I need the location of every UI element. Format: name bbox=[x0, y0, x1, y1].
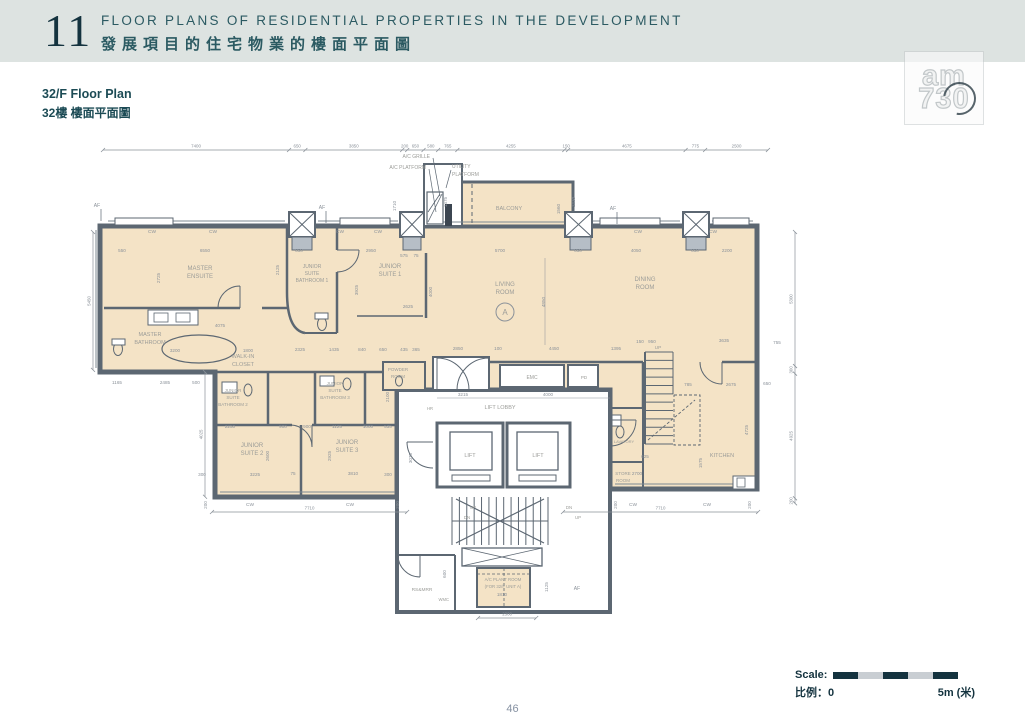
plan-label: 75 bbox=[290, 471, 296, 476]
plan-label: 575 bbox=[400, 253, 408, 258]
vanity bbox=[148, 310, 198, 325]
plan-label: 775 bbox=[692, 144, 700, 149]
plan-label: 2300 bbox=[502, 612, 512, 617]
plan-label: BALCONY bbox=[496, 206, 523, 212]
plan-label: ROOM bbox=[391, 374, 405, 379]
plan-label: 500 bbox=[192, 380, 200, 385]
plan-label: 1395 bbox=[611, 346, 622, 351]
plan-label: 4000 bbox=[543, 392, 554, 397]
plan-label: 625 bbox=[641, 454, 649, 459]
plan-label: JUNIOR bbox=[241, 443, 264, 449]
plan-label: CW bbox=[148, 229, 156, 235]
plan-label: SUITE 3 bbox=[336, 448, 359, 454]
plan-label: 200 bbox=[203, 501, 208, 509]
plan-label: SUITE bbox=[328, 388, 341, 393]
plan-label: DN bbox=[566, 505, 572, 510]
plan-label: CW bbox=[709, 229, 717, 235]
plan-label: 4025 bbox=[199, 429, 204, 439]
plan-label: SUITE 2 bbox=[241, 451, 264, 457]
plan-label: 1810 bbox=[497, 592, 508, 597]
scale-segment bbox=[833, 672, 858, 679]
plan-label: 2200 bbox=[722, 248, 733, 253]
plan-label: (FOR 32/F UNIT A) bbox=[485, 584, 522, 589]
plan-label: 900 bbox=[279, 424, 287, 429]
plan-label: BATHROOM 2 bbox=[218, 402, 248, 407]
plan-label: UP bbox=[655, 345, 662, 351]
plan-label: 2125 bbox=[275, 264, 280, 275]
plan-label: 2925 bbox=[327, 450, 332, 461]
plan-label: CW bbox=[634, 229, 642, 235]
plan-label: 5700 bbox=[495, 248, 506, 253]
scale-segment bbox=[933, 672, 958, 679]
plan-label: JUNIOR bbox=[336, 440, 359, 446]
plan-label: LIFT bbox=[464, 453, 476, 459]
plan-label: 3850 bbox=[349, 144, 359, 149]
plan-label: 4725 bbox=[744, 424, 749, 435]
plan-label: 3925 bbox=[354, 284, 359, 295]
plan-label: 785 bbox=[684, 382, 692, 387]
plan-label: WMC bbox=[439, 597, 449, 602]
plan-label: LAVATORY bbox=[614, 439, 635, 444]
plan-label: CW bbox=[629, 502, 637, 508]
plan-label: AF bbox=[610, 206, 616, 212]
plan-label: 2100 bbox=[385, 391, 390, 402]
plan-label: 755 bbox=[773, 340, 781, 345]
plan-label: 3635 bbox=[719, 338, 730, 343]
plan-label: 6550 bbox=[200, 248, 211, 253]
plan-label: AF bbox=[319, 205, 325, 211]
plan-label: CW bbox=[703, 502, 711, 508]
plan-label: 650 bbox=[294, 144, 302, 149]
plan-label: 1800 bbox=[243, 348, 254, 353]
plan-label: WALK-IN bbox=[232, 354, 255, 360]
plan-label: 1000 bbox=[363, 424, 374, 429]
scale-segment bbox=[908, 672, 933, 679]
plan-label: BATHROOM 1 bbox=[296, 278, 329, 284]
plan-label: 300 bbox=[789, 366, 794, 374]
plan-label: 3200 bbox=[170, 348, 181, 353]
plan-label: 300 bbox=[198, 472, 206, 477]
plan-label: JUNIOR bbox=[303, 264, 322, 270]
plan-label: 650 bbox=[295, 248, 303, 253]
plan-label: A/C GRILLE bbox=[402, 154, 430, 160]
plan-label: 2625 bbox=[403, 304, 414, 309]
plan-label: 1435 bbox=[329, 347, 340, 352]
plan-label: 5300 bbox=[789, 294, 794, 304]
plan-label: 1125 bbox=[544, 582, 549, 592]
plan-label: JUNIOR bbox=[379, 264, 402, 270]
plan-label: 550 bbox=[118, 248, 126, 253]
plan-shape bbox=[713, 218, 749, 225]
plan-shape bbox=[600, 218, 660, 225]
plan-label: 840 bbox=[358, 347, 366, 352]
plan-label: 4255 bbox=[506, 144, 516, 149]
plan-label: 3215 bbox=[458, 392, 469, 397]
plan-label: PLATFORM bbox=[452, 172, 479, 178]
scale-label-en: Scale: bbox=[795, 669, 827, 681]
plan-label: CW bbox=[209, 229, 217, 235]
plan-label: CW bbox=[336, 229, 344, 235]
plan-label: 650 bbox=[574, 248, 582, 253]
plan-shape bbox=[340, 218, 390, 225]
plan-label: 2675 bbox=[726, 382, 737, 387]
plan-label: 4000 bbox=[428, 286, 433, 297]
am730-watermark-logo: am 730 bbox=[905, 52, 983, 124]
plan-label: 4925 bbox=[789, 431, 794, 441]
scale-zero: 比例：0 bbox=[795, 684, 834, 700]
scale-segment bbox=[858, 672, 883, 679]
plan-label: DN bbox=[464, 515, 470, 520]
plan-label: ROOM bbox=[616, 478, 630, 483]
floor-plan-drawing: 7400650385020065058076542551504675775250… bbox=[0, 0, 1025, 727]
plan-label: 650 bbox=[379, 347, 387, 352]
plan-shape bbox=[315, 313, 328, 319]
plan-label: 365 bbox=[412, 347, 420, 352]
plan-label: SUITE bbox=[226, 395, 239, 400]
plan-label: HR bbox=[427, 406, 433, 411]
plan-label: 7710 bbox=[656, 506, 666, 511]
plan-label: 2485 bbox=[160, 380, 171, 385]
plan-label: 4850 bbox=[541, 296, 546, 307]
plan-label: RS&MRR bbox=[412, 587, 433, 593]
plan-shape bbox=[115, 218, 173, 225]
plan-label: 3075 bbox=[408, 452, 413, 463]
plan-label: KITCHEN bbox=[710, 453, 734, 459]
plan-label: 4675 bbox=[622, 144, 632, 149]
plan-label: JUNIOR bbox=[225, 388, 243, 393]
plan-label: LIVING bbox=[495, 282, 515, 288]
plan-label: 580 bbox=[427, 144, 435, 149]
plan-label: 1710 bbox=[392, 200, 397, 211]
plan-label: ENSUITE bbox=[187, 274, 213, 280]
page-number: 46 bbox=[0, 703, 1025, 715]
plan-label: 2325 bbox=[295, 347, 306, 352]
scale-bar: Scale: 比例：0 5m (米) bbox=[795, 669, 975, 700]
plan-label: UP bbox=[470, 505, 476, 510]
plan-label: 1375 bbox=[443, 196, 448, 207]
plan-label: 1575 bbox=[698, 457, 703, 468]
plan-label: CLOSET bbox=[232, 362, 255, 368]
plan-label: 2500 bbox=[732, 144, 742, 149]
plan-label: 4450 bbox=[549, 346, 560, 351]
plan-label: LIFT bbox=[532, 453, 544, 459]
plan-label: 200 bbox=[401, 144, 409, 149]
plan-label: 650 bbox=[412, 144, 420, 149]
plan-shape bbox=[112, 339, 125, 345]
plan-label: UP bbox=[575, 515, 581, 520]
plan-shape bbox=[403, 237, 421, 250]
plan-label: AF bbox=[574, 586, 580, 592]
plan-label: 3810 bbox=[348, 471, 359, 476]
plan-label: STORE bbox=[615, 471, 630, 476]
plan-label: 150 bbox=[563, 144, 571, 149]
plan-label: 650 bbox=[763, 381, 771, 386]
plan-label: 900 bbox=[303, 424, 311, 429]
plan-label: 2700 bbox=[632, 471, 643, 476]
plan-label: 2250 bbox=[225, 424, 236, 429]
plan-label: SUITE 1 bbox=[379, 272, 402, 278]
plan-label: ROOM bbox=[636, 285, 655, 291]
plan-label: 100 bbox=[494, 346, 502, 351]
plan-label: MASTER bbox=[187, 266, 213, 272]
plan-label: A/C PLATFORM bbox=[389, 165, 426, 171]
plan-label: 1125 bbox=[332, 424, 342, 429]
plan-label: UTILITY bbox=[452, 164, 471, 170]
plan-label: A bbox=[502, 308, 508, 317]
plan-label: CW bbox=[346, 502, 354, 508]
plan-label: SUITE bbox=[305, 271, 320, 277]
plan-label: 535 bbox=[384, 424, 392, 429]
plan-label: LIFT LOBBY bbox=[484, 405, 515, 411]
plan-label: MASTER bbox=[139, 332, 162, 338]
plan-label: 300 bbox=[384, 472, 392, 477]
plan-label: 4075 bbox=[215, 323, 226, 328]
plan-label: 200 bbox=[747, 501, 752, 509]
scale-max: 5m (米) bbox=[938, 684, 975, 700]
plan-label: JUNIOR bbox=[327, 381, 345, 386]
plan-label: 75 bbox=[413, 253, 419, 258]
plan-label: 435 bbox=[400, 347, 408, 352]
plan-label: 7710 bbox=[305, 506, 315, 511]
plan-label: 4050 bbox=[631, 248, 642, 253]
plan-label: AF bbox=[94, 203, 100, 209]
plan-label: 2950 bbox=[366, 248, 377, 253]
plan-label: PD bbox=[581, 375, 588, 380]
plan-label: EMC bbox=[526, 375, 538, 381]
scale-bar-segments bbox=[833, 672, 958, 679]
plan-label: 650 bbox=[691, 248, 699, 253]
plan-label: 1165 bbox=[112, 380, 122, 385]
plan-label: BATHROOM bbox=[134, 340, 166, 346]
plan-label: 765 bbox=[444, 144, 452, 149]
plan-label: A/C PLANT ROOM bbox=[485, 577, 522, 582]
plan-label: 200 bbox=[395, 501, 400, 509]
plan-label: 1560 bbox=[556, 203, 561, 214]
plan-label: DINING bbox=[635, 277, 656, 283]
plan-label: 7400 bbox=[191, 144, 201, 149]
plan-label: BATHROOM 3 bbox=[320, 395, 350, 400]
plan-label: 150 bbox=[636, 339, 644, 344]
plan-label: 200 bbox=[613, 501, 618, 509]
plan-label: 5450 bbox=[87, 296, 92, 306]
plan-label: POWDER bbox=[388, 367, 409, 372]
plan-label: 1210 bbox=[571, 196, 576, 207]
plan-label: 600 bbox=[442, 570, 447, 578]
plan-label: 950 bbox=[648, 339, 656, 344]
plan-label: ROOM bbox=[496, 290, 515, 296]
plan-label: 2600 bbox=[265, 450, 270, 461]
plan-label: 3225 bbox=[250, 472, 261, 477]
scale-segment bbox=[883, 672, 908, 679]
plan-label: 2850 bbox=[453, 346, 464, 351]
plan-label: 2725 bbox=[156, 272, 161, 283]
plan-label: CW bbox=[246, 502, 254, 508]
plan-label: CW bbox=[374, 229, 382, 235]
plan-label: 200 bbox=[789, 497, 794, 505]
